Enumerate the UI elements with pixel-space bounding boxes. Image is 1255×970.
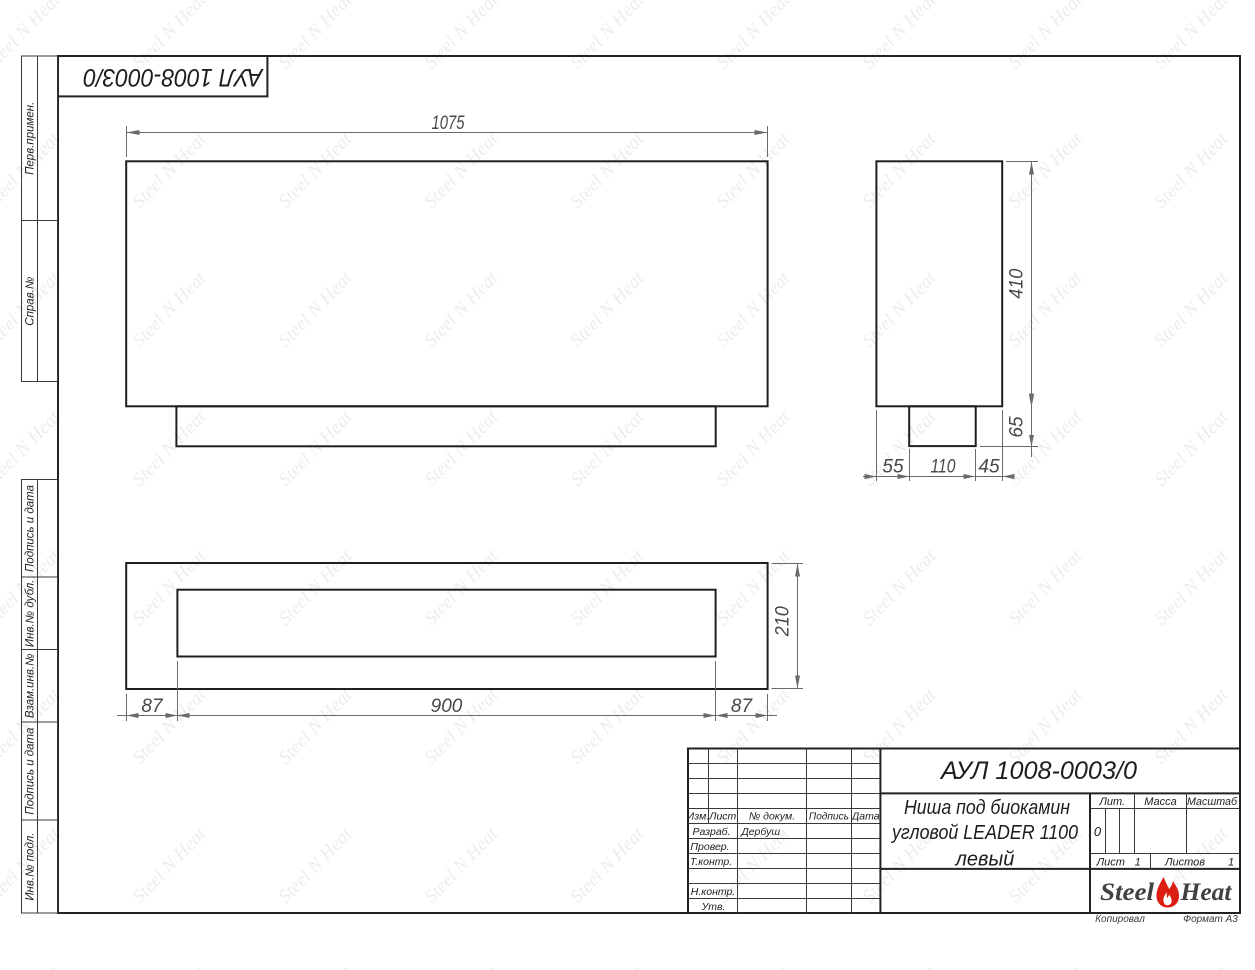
svg-text:Провер.: Провер. bbox=[690, 841, 729, 853]
svg-text:87: 87 bbox=[141, 696, 164, 717]
svg-text:Взам.инв.№: Взам.инв.№ bbox=[25, 653, 37, 718]
svg-text:110: 110 bbox=[931, 457, 956, 478]
svg-text:Heat: Heat bbox=[1179, 879, 1232, 906]
svg-text:Т.контр.: Т.контр. bbox=[690, 856, 732, 868]
svg-text:Лист: Лист bbox=[708, 811, 736, 823]
svg-text:1: 1 bbox=[1135, 857, 1141, 869]
svg-text:Дербуш: Дербуш bbox=[740, 826, 780, 838]
svg-text:Формат А3: Формат А3 bbox=[1183, 914, 1238, 925]
svg-text:Утв.: Утв. bbox=[701, 901, 726, 913]
svg-text:210: 210 bbox=[773, 606, 794, 637]
svg-text:Разраб.: Разраб. bbox=[693, 826, 731, 838]
svg-text:Листов: Листов bbox=[1164, 857, 1205, 869]
svg-text:0: 0 bbox=[1094, 824, 1102, 839]
svg-text:Подпись: Подпись bbox=[809, 811, 849, 823]
svg-text:Steel: Steel bbox=[1100, 879, 1154, 906]
svg-text:1: 1 bbox=[1228, 857, 1234, 869]
svg-text:Лит.: Лит. bbox=[1098, 796, 1125, 808]
svg-text:Дата: Дата bbox=[851, 811, 880, 823]
svg-text:Перв.примен.: Перв.примен. bbox=[25, 102, 37, 175]
svg-text:левый: левый bbox=[955, 849, 1015, 871]
svg-text:87: 87 bbox=[731, 696, 754, 717]
svg-text:Инв.№ подл.: Инв.№ подл. bbox=[25, 833, 37, 901]
svg-text:угловой LEADER 1100: угловой LEADER 1100 bbox=[890, 822, 1078, 844]
svg-text:55: 55 bbox=[882, 457, 904, 478]
svg-text:65: 65 bbox=[1007, 416, 1028, 438]
svg-text:№ докум.: № докум. bbox=[749, 811, 795, 823]
svg-text:1075: 1075 bbox=[432, 113, 465, 134]
svg-text:Ниша под биокамин: Ниша под биокамин bbox=[904, 797, 1070, 819]
svg-text:410: 410 bbox=[1007, 268, 1028, 298]
svg-text:45: 45 bbox=[978, 457, 1000, 478]
svg-text:Подпись и дата: Подпись и дата bbox=[25, 728, 37, 815]
svg-text:Справ.№: Справ.№ bbox=[25, 276, 37, 326]
svg-text:Подпись и дата: Подпись и дата bbox=[25, 485, 37, 572]
svg-text:900: 900 bbox=[431, 696, 463, 717]
svg-text:АУЛ 1008-0003/0: АУЛ 1008-0003/0 bbox=[939, 757, 1137, 785]
svg-text:Н.контр.: Н.контр. bbox=[691, 886, 735, 898]
svg-text:Инв.№ дубл.: Инв.№ дубл. bbox=[25, 580, 37, 648]
svg-text:Копировал: Копировал bbox=[1095, 914, 1145, 925]
svg-text:Масса: Масса bbox=[1144, 796, 1177, 808]
svg-text:Изм.: Изм. bbox=[687, 811, 709, 823]
svg-text:АУЛ 1008-0003/0: АУЛ 1008-0003/0 bbox=[83, 63, 264, 91]
svg-text:Масштаб: Масштаб bbox=[1187, 796, 1238, 808]
svg-text:Лист: Лист bbox=[1096, 857, 1125, 869]
